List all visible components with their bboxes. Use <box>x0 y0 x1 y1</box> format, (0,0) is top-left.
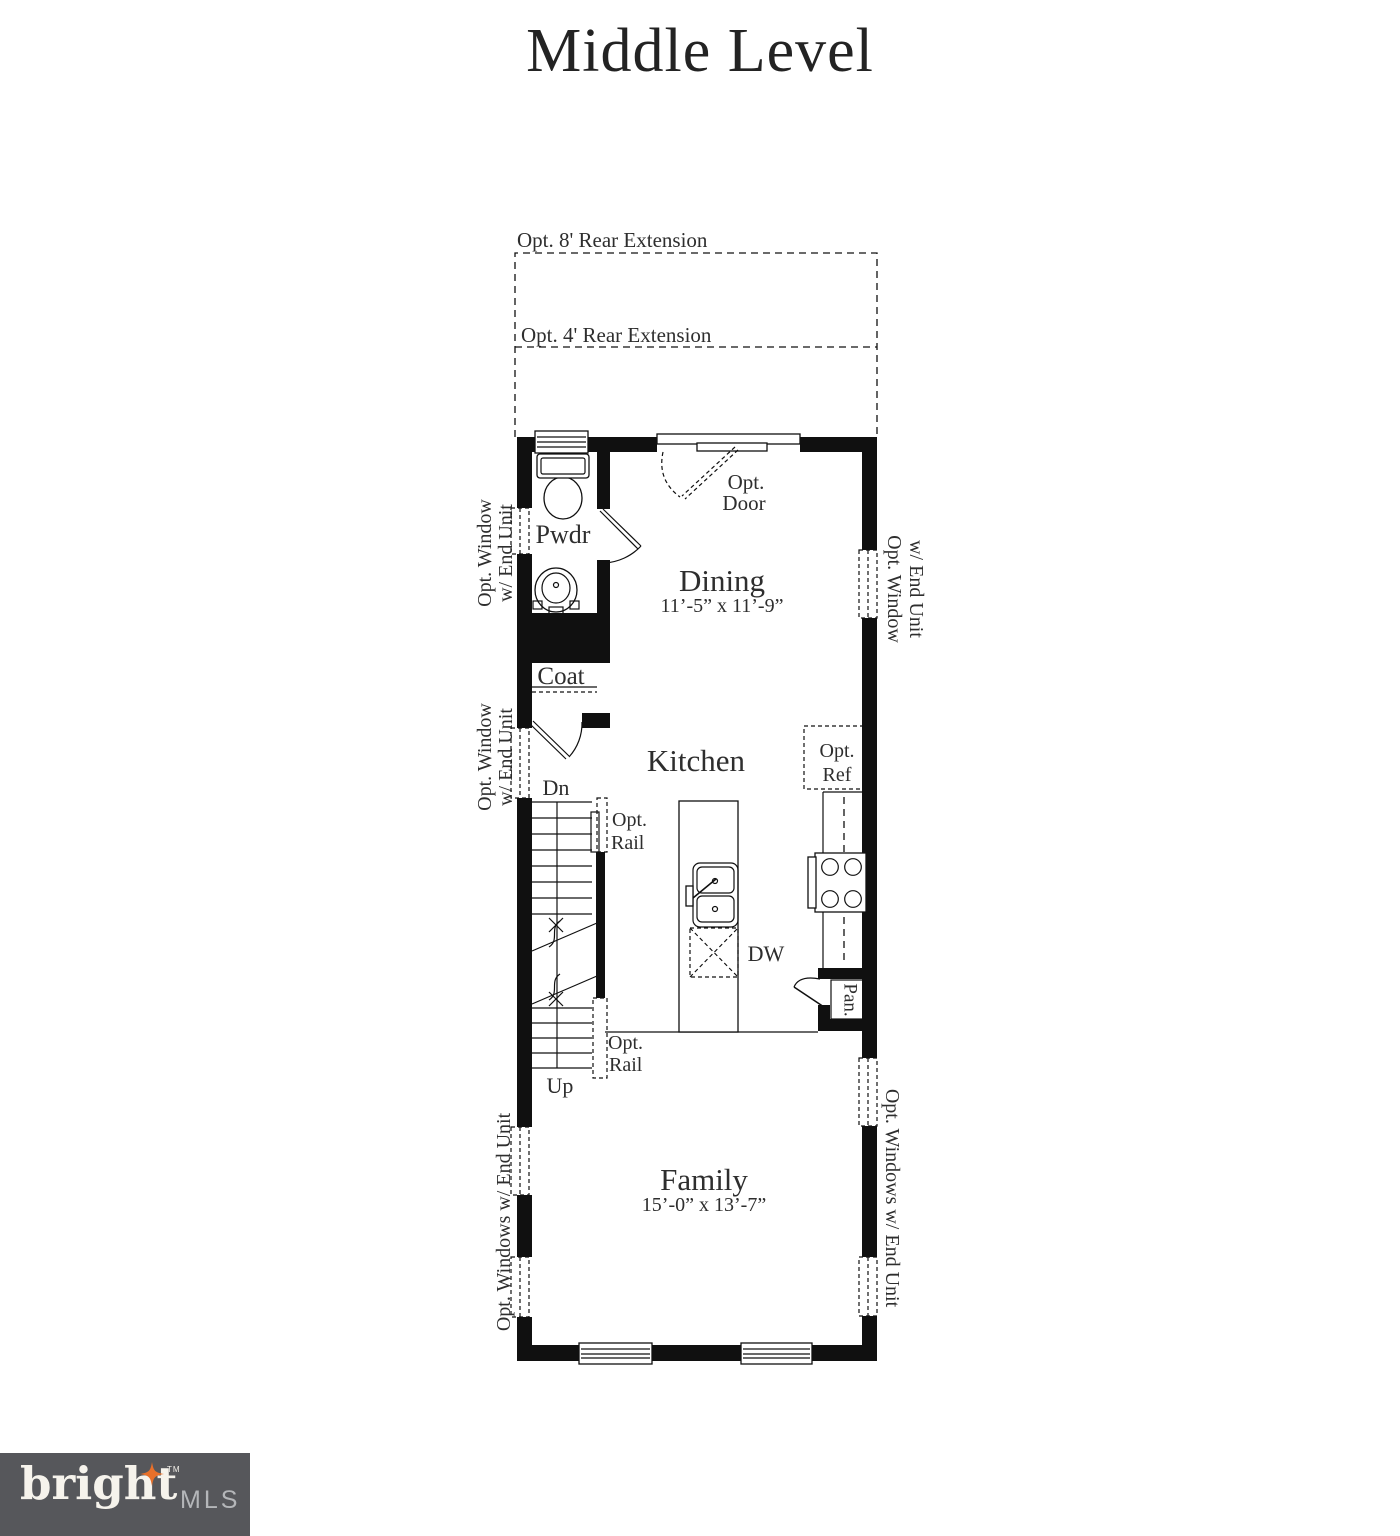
label-kitchen: Kitchen <box>647 743 746 778</box>
floorplan-svg: Opt. 8' Rear Extension Opt. 4' Rear Exte… <box>440 215 970 1415</box>
optional-rail <box>591 798 607 1078</box>
wall-segment <box>588 437 657 452</box>
logo-mls-text: MLS <box>180 1486 240 1515</box>
label-opt-window-left-upper-1: Opt. Window <box>474 499 496 607</box>
label-dw: DW <box>748 941 785 966</box>
label-opt-door-2: Door <box>722 491 765 515</box>
powder-room <box>532 452 641 663</box>
logo-trademark: TM <box>167 1465 181 1474</box>
label-pwdr: Pwdr <box>536 520 591 549</box>
toilet <box>537 454 589 519</box>
label-coat: Coat <box>537 663 584 690</box>
window <box>535 431 588 453</box>
label-up: Up <box>547 1073 574 1098</box>
wall-segment <box>652 1345 742 1361</box>
optional-window <box>859 550 877 618</box>
rear-extension: Opt. 8' Rear Extension Opt. 4' Rear Exte… <box>515 228 877 437</box>
label-dining: Dining <box>679 563 765 598</box>
floor-plan-page: Middle Level Opt. 8' Rear Extension Opt.… <box>0 0 1400 1536</box>
window <box>579 1343 652 1364</box>
label-family-dim: 15’-0” x 13’-7” <box>642 1194 766 1216</box>
star-icon <box>138 1460 166 1488</box>
page-title: Middle Level <box>0 16 1400 87</box>
powder-door <box>600 509 641 563</box>
opt-8-extension-label: Opt. 8' Rear Extension <box>517 228 708 252</box>
opt-4-extension-label: Opt. 4' Rear Extension <box>521 323 712 347</box>
label-pantry: Pan. <box>840 983 861 1016</box>
label-opt-rail-top-2: Rail <box>611 832 645 854</box>
window <box>741 1343 812 1364</box>
label-opt-rail-bottom-2: Rail <box>609 1054 643 1076</box>
label-dn: Dn <box>543 775 570 800</box>
stair-break-lines <box>532 918 597 1006</box>
label-opt-ref-2: Ref <box>823 764 852 786</box>
bright-mls-logo: bright TM MLS <box>0 1453 250 1536</box>
wall-segment <box>862 437 877 550</box>
wall-segment <box>582 713 610 728</box>
label-family: Family <box>660 1162 748 1197</box>
wall-segment <box>597 560 610 613</box>
pedestal-sink <box>533 568 579 614</box>
coat-door <box>530 721 582 759</box>
label-opt-window-left-upper-2: w/ End Unit <box>495 504 517 602</box>
label-opt-window-right-upper-2: w/ End Unit <box>905 540 927 638</box>
label-dining-dim: 11’-5” x 11’-9” <box>661 595 784 617</box>
chase <box>532 613 610 663</box>
wall-segment <box>517 437 532 508</box>
kitchen-island <box>679 801 738 1032</box>
stairs <box>532 798 818 1078</box>
wall-segment <box>517 554 532 728</box>
wall-segment <box>862 1316 877 1361</box>
label-opt-ref-1: Opt. <box>820 740 855 762</box>
optional-window <box>859 1058 877 1126</box>
label-opt-rail-bottom-1: Opt. <box>608 1032 643 1054</box>
label-opt-windows-left-lower: Opt. Windows w/ End Unit <box>493 1112 515 1331</box>
wall-segment <box>517 798 532 1127</box>
wall-segment <box>517 1345 580 1361</box>
optional-window <box>859 1257 877 1316</box>
wall-segment <box>597 452 610 509</box>
wall-segment <box>517 1195 532 1257</box>
label-opt-rail-top-1: Opt. <box>612 809 647 831</box>
wall-segment <box>862 1126 877 1257</box>
label-opt-window-right-upper-1: Opt. Window <box>883 535 905 643</box>
label-opt-windows-right-lower: Opt. Windows w/ End Unit <box>881 1089 903 1308</box>
pantry <box>794 968 877 1031</box>
coat-closet <box>530 687 610 759</box>
stair-treads <box>532 802 592 1068</box>
stove <box>808 853 866 912</box>
label-opt-window-left-mid-2: w/ End Unit <box>495 708 517 806</box>
label-opt-window-left-mid-1: Opt. Window <box>474 703 496 811</box>
